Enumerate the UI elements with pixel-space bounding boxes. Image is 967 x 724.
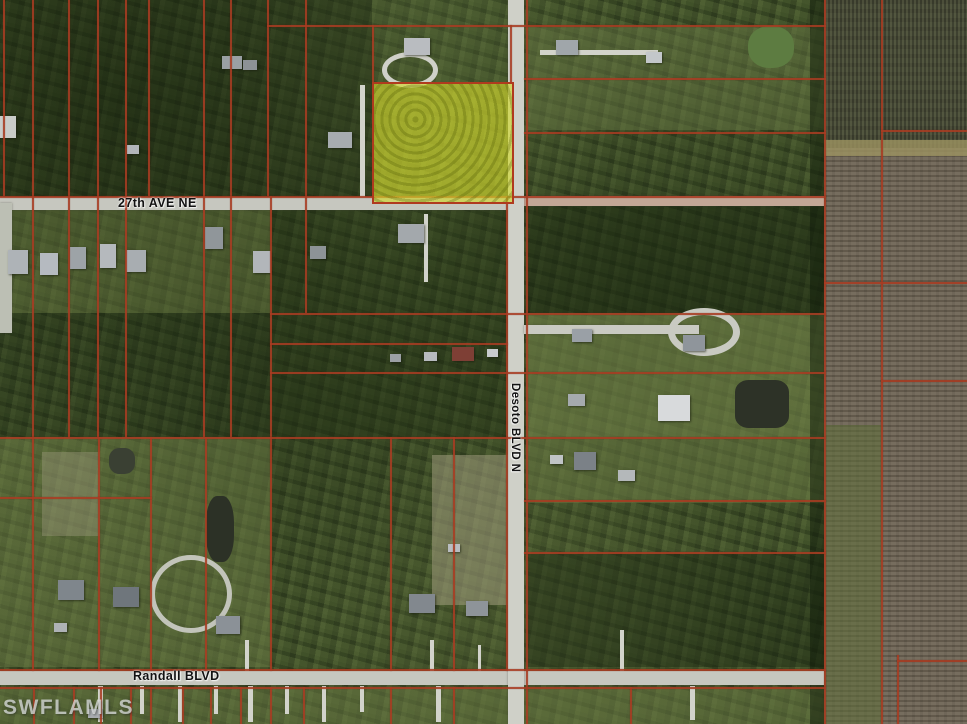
building-roof (70, 247, 86, 269)
parcel-boundary-line (524, 132, 826, 134)
building-roof (243, 60, 257, 70)
building-roof (398, 224, 424, 243)
parcel-boundary-line (210, 687, 212, 724)
building-roof (113, 587, 139, 607)
parcel-boundary-line (270, 687, 272, 724)
parcel-boundary-line (305, 0, 307, 196)
building-roof (54, 623, 67, 632)
building-roof (572, 329, 592, 342)
parcel-boundary-line (524, 78, 826, 80)
road-label-randall-blvd: Randall BLVD (133, 669, 220, 683)
parcel-boundary-line (32, 437, 34, 671)
parcel-boundary-line (270, 313, 826, 315)
forest-mid (272, 203, 506, 437)
driveway (214, 686, 218, 714)
driveway (322, 686, 326, 722)
parcel-boundary-line (824, 0, 826, 724)
parcel-boundary-line (205, 437, 207, 671)
parcel-boundary-line (0, 437, 826, 439)
parcel-boundary-line (881, 0, 883, 724)
parcel-boundary-line (305, 196, 307, 313)
sand-left (42, 452, 100, 536)
building-roof (328, 132, 352, 148)
parcel-boundary-line (240, 687, 242, 724)
driveway (478, 645, 481, 671)
parcel-boundary-line (453, 687, 455, 724)
building-roof (100, 244, 116, 268)
parcel-boundary-line (230, 196, 232, 437)
parcel-boundary-line (372, 25, 374, 82)
building-roof (683, 335, 705, 351)
farm-green-strip (824, 425, 882, 724)
aerial-parcel-map: 27th AVE NE Desoto BLVD N Randall BLVD S… (0, 0, 967, 724)
parcel-boundary-line (125, 0, 127, 196)
parcel-boundary-line (270, 343, 508, 345)
building-roof (658, 395, 690, 421)
building-roof (127, 145, 139, 154)
pond-green-topright (748, 26, 794, 68)
building-roof (466, 601, 488, 616)
driveway (140, 686, 144, 714)
building-roof (618, 470, 635, 481)
parcel-boundary-line (267, 0, 269, 196)
forest-east-lower (526, 554, 824, 667)
parcel-boundary-line (32, 0, 34, 196)
building-roof (568, 394, 585, 406)
parcel-boundary-line (524, 500, 826, 502)
parcel-boundary-line (390, 687, 392, 724)
parcel-boundary-line (506, 196, 508, 671)
parcel-boundary-line (97, 0, 99, 196)
driveway (436, 686, 441, 722)
parcel-boundary-line (303, 687, 305, 724)
forest-top-left (0, 0, 372, 196)
pond-dark-left (206, 496, 234, 562)
parcel-boundary-line (182, 687, 184, 724)
road-label-27th-ave-ne: 27th AVE NE (118, 196, 197, 210)
driveway (360, 85, 365, 197)
building-roof (574, 452, 596, 470)
parcel-boundary-line (390, 437, 392, 671)
forest-east-upper (526, 203, 824, 313)
parcel-boundary-line (3, 0, 5, 196)
parcel-boundary-line (203, 196, 205, 437)
building-roof (452, 347, 474, 361)
driveway (690, 686, 695, 720)
building-roof (424, 352, 437, 361)
parcel-boundary-line (453, 437, 455, 671)
sand-mid-south (432, 455, 508, 605)
parcel-boundary-line (0, 497, 152, 499)
parcel-boundary-line (32, 196, 34, 437)
parcel-boundary-line (148, 0, 150, 196)
open-east-low (526, 437, 824, 503)
parcel-boundary-line (897, 655, 899, 724)
building-roof (409, 594, 435, 613)
parcel-boundary-line (267, 25, 826, 27)
parcel-boundary-line (510, 25, 512, 82)
parcel-boundary-line (881, 130, 967, 132)
building-roof (216, 616, 240, 634)
building-roof (253, 251, 271, 273)
road-randall-blvd (0, 671, 824, 685)
parcel-boundary-line (98, 437, 100, 671)
parcel-boundary-line (824, 282, 967, 284)
mls-watermark: SWFLAMLS (3, 696, 134, 720)
parcel-boundary-line (0, 669, 826, 671)
parcel-boundary-line (0, 687, 826, 689)
parcel-boundary-line (270, 437, 272, 671)
building-roof (58, 580, 84, 600)
parcel-boundary-line (125, 196, 127, 437)
parcel-boundary-line (203, 0, 205, 196)
parcel-boundary-line (524, 552, 826, 554)
driveway (424, 214, 428, 282)
parcel-boundary-line (270, 196, 272, 437)
parcel-boundary-line (270, 372, 826, 374)
driveway (620, 630, 624, 671)
parcel-boundary-line (897, 660, 967, 662)
parcel-boundary-line (68, 196, 70, 437)
parcel-boundary-line (150, 437, 152, 671)
parcel-boundary-line (630, 687, 632, 724)
building-roof (205, 227, 223, 249)
parcel-boundary-line (526, 0, 528, 724)
parcel-boundary-line (150, 687, 152, 724)
building-roof (126, 250, 146, 272)
building-roof (390, 354, 401, 362)
road-label-desoto-blvd-n: Desoto BLVD N (509, 383, 521, 472)
pond-dark-east (735, 380, 789, 428)
building-roof (550, 455, 563, 464)
parcel-boundary-line (97, 196, 99, 437)
driveway (248, 686, 253, 722)
driveway (285, 686, 289, 714)
building-roof (404, 38, 430, 55)
parcel-boundary-line (881, 380, 967, 382)
pond-small-left (109, 448, 135, 474)
farm-track (824, 140, 967, 156)
farm-field-north (824, 0, 967, 148)
building-roof (8, 250, 28, 274)
driveway (245, 640, 249, 671)
building-roof (222, 56, 242, 69)
parcel-boundary-line (68, 0, 70, 196)
building-roof (487, 349, 498, 357)
driveway (360, 686, 364, 712)
building-roof (556, 40, 578, 55)
building-roof (310, 246, 326, 259)
highlighted-subject-parcel (372, 82, 514, 204)
building-roof (40, 253, 58, 275)
building-roof (646, 52, 662, 63)
parcel-boundary-line (230, 0, 232, 196)
driveway (430, 640, 434, 671)
